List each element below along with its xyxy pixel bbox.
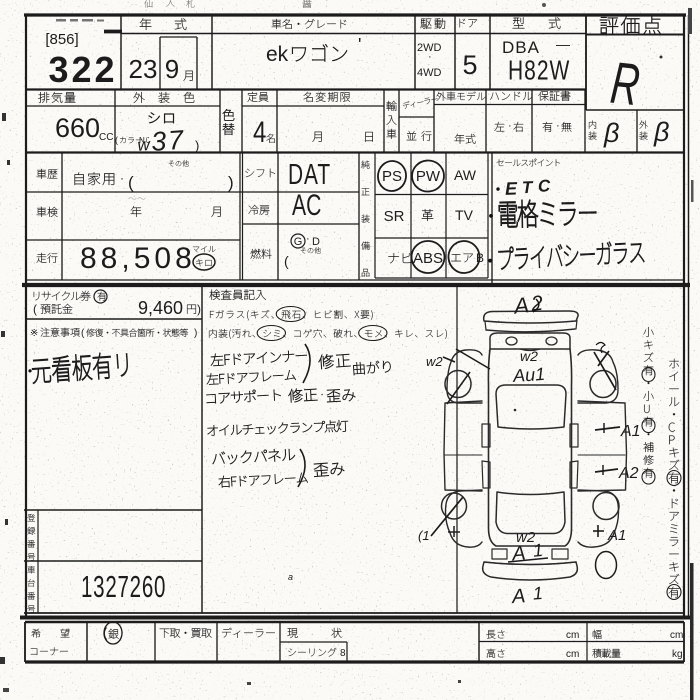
svg-text:88,508: 88,508 xyxy=(80,242,196,275)
svg-text:PW: PW xyxy=(416,168,441,185)
svg-text:9,460: 9,460 xyxy=(138,298,183,318)
svg-text:37: 37 xyxy=(150,125,186,157)
svg-text:[856]: [856] xyxy=(45,31,78,48)
svg-text:w2: w2 xyxy=(520,348,538,364)
svg-text:·: · xyxy=(320,387,325,401)
svg-text:ek: ek xyxy=(266,43,289,66)
svg-text:·: · xyxy=(556,120,560,132)
svg-text:8: 8 xyxy=(340,648,346,659)
svg-text:cm: cm xyxy=(566,649,579,660)
svg-text:Au1: Au1 xyxy=(511,364,545,386)
svg-text:(: ( xyxy=(33,302,37,316)
svg-text:A2: A2 xyxy=(618,465,639,482)
svg-text:G: G xyxy=(294,236,303,248)
svg-text:a: a xyxy=(288,572,293,582)
svg-text:DBA: DBA xyxy=(502,38,540,57)
svg-text:E: E xyxy=(505,178,519,198)
svg-text:5: 5 xyxy=(462,50,477,80)
svg-text:(: ( xyxy=(128,173,134,192)
svg-text:cm: cm xyxy=(566,630,579,641)
svg-text:23: 23 xyxy=(129,54,158,84)
svg-text:9: 9 xyxy=(165,54,179,84)
svg-text:kg: kg xyxy=(672,649,683,660)
svg-text:cm: cm xyxy=(670,630,683,641)
svg-text:CC: CC xyxy=(99,132,113,143)
svg-text:H82W: H82W xyxy=(508,56,570,87)
svg-text:※: ※ xyxy=(30,328,38,339)
svg-text:A1: A1 xyxy=(620,423,641,440)
svg-text:AW: AW xyxy=(454,167,477,183)
svg-text:(: ( xyxy=(284,253,289,269)
svg-text:A: A xyxy=(510,585,526,608)
svg-text:': ' xyxy=(358,35,361,55)
svg-text:): ) xyxy=(197,302,201,316)
svg-text:·: · xyxy=(306,233,310,245)
svg-text:(: ( xyxy=(115,135,118,145)
svg-text:PS: PS xyxy=(382,168,402,185)
svg-text:β: β xyxy=(653,117,669,147)
svg-text:322: 322 xyxy=(48,49,117,90)
svg-text:SR: SR xyxy=(384,208,405,225)
svg-text:4WD: 4WD xyxy=(417,67,442,79)
svg-text:—: — xyxy=(556,36,570,52)
svg-text:(1: (1 xyxy=(418,528,430,543)
svg-text:w2: w2 xyxy=(426,354,443,369)
svg-text:·: · xyxy=(120,171,124,185)
svg-text:·: · xyxy=(508,120,512,132)
svg-text:4: 4 xyxy=(253,114,266,148)
svg-text:C: C xyxy=(538,176,552,195)
svg-text:AC: AC xyxy=(292,190,321,222)
svg-text:DAT: DAT xyxy=(288,159,331,191)
svg-text:1327260: 1327260 xyxy=(81,571,166,604)
svg-text:A1: A1 xyxy=(607,527,626,544)
svg-text:〜〜: 〜〜 xyxy=(128,194,146,204)
svg-text:): ) xyxy=(195,138,199,153)
svg-text:TV: TV xyxy=(455,207,474,223)
svg-text:660: 660 xyxy=(55,113,100,143)
svg-text:): ) xyxy=(194,328,197,339)
svg-text:β: β xyxy=(603,118,619,148)
svg-text:1: 1 xyxy=(532,583,543,604)
svg-text:D: D xyxy=(312,236,320,248)
svg-text:1: 1 xyxy=(532,540,544,561)
svg-text:·: · xyxy=(428,51,432,63)
svg-text:): ) xyxy=(228,173,234,192)
svg-text:ABS: ABS xyxy=(413,250,443,267)
